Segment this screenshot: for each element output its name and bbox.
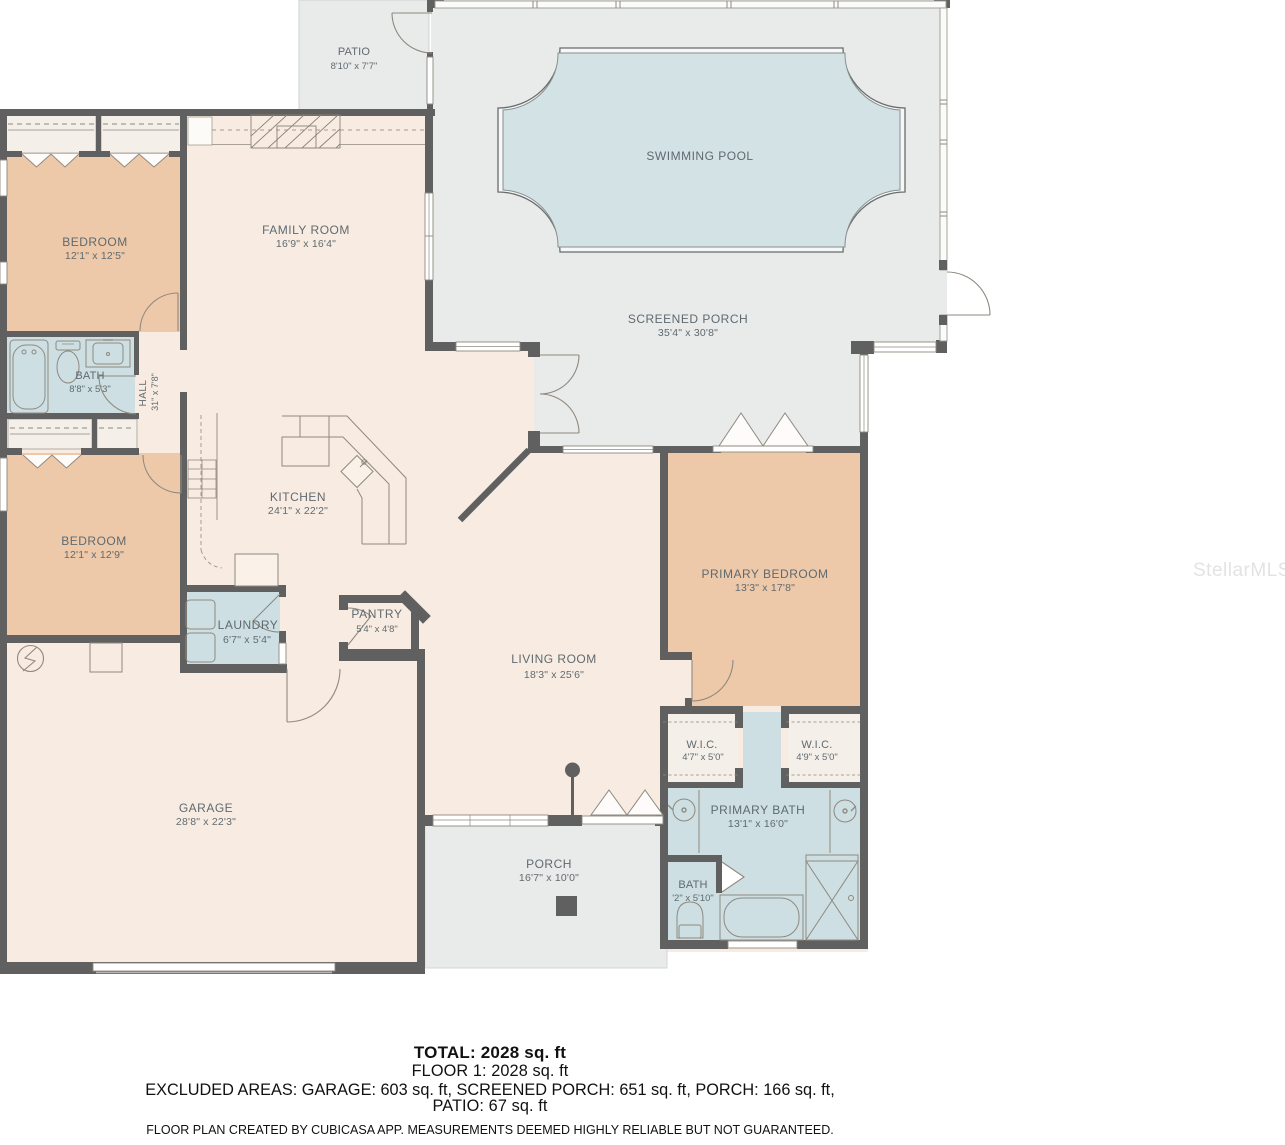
svg-text:24'1" x 22'2": 24'1" x 22'2" (268, 505, 328, 517)
svg-text:31" x 7'8": 31" x 7'8" (150, 373, 160, 411)
svg-text:LAUNDRY: LAUNDRY (218, 618, 279, 632)
svg-text:12'1" x 12'9": 12'1" x 12'9" (64, 549, 124, 561)
svg-text:6'7" x 5'4": 6'7" x 5'4" (223, 634, 271, 646)
svg-text:PORCH: PORCH (526, 857, 572, 871)
svg-text:8'10" x 7'7": 8'10" x 7'7" (331, 61, 378, 72)
svg-text:FAMILY ROOM: FAMILY ROOM (262, 223, 350, 237)
svg-text:'2" x 5'10": '2" x 5'10" (672, 893, 714, 904)
svg-text:5'4" x 4'8": 5'4" x 4'8" (356, 624, 398, 635)
svg-text:16'9" x 16'4": 16'9" x 16'4" (276, 238, 336, 250)
svg-text:13'3" x 17'8": 13'3" x 17'8" (735, 582, 795, 594)
svg-text:4'9" x 5'0": 4'9" x 5'0" (796, 752, 838, 763)
svg-text:LIVING ROOM: LIVING ROOM (511, 652, 597, 666)
svg-text:12'1" x 12'5": 12'1" x 12'5" (65, 250, 125, 262)
svg-text:4'7" x 5'0": 4'7" x 5'0" (682, 752, 724, 763)
svg-text:BEDROOM: BEDROOM (61, 534, 127, 548)
svg-text:BEDROOM: BEDROOM (62, 235, 128, 249)
svg-text:W.I.C.: W.I.C. (686, 739, 717, 751)
svg-text:W.I.C.: W.I.C. (801, 739, 832, 751)
svg-text:16'7" x 10'0": 16'7" x 10'0" (519, 872, 579, 884)
svg-text:8'8" x 5'3": 8'8" x 5'3" (69, 384, 111, 395)
svg-text:GARAGE: GARAGE (179, 801, 233, 815)
svg-text:KITCHEN: KITCHEN (270, 490, 326, 504)
svg-text:PANTRY: PANTRY (351, 607, 402, 621)
svg-text:28'8" x 22'3": 28'8" x 22'3" (176, 816, 236, 828)
svg-text:18'3" x 25'6": 18'3" x 25'6" (524, 669, 584, 681)
svg-text:PRIMARY BATH: PRIMARY BATH (711, 803, 806, 817)
svg-text:PATIO: PATIO (338, 46, 371, 58)
svg-text:HALL: HALL (138, 379, 149, 406)
svg-text:35'4" x 30'8": 35'4" x 30'8" (658, 327, 718, 339)
svg-text:13'1" x 16'0": 13'1" x 16'0" (728, 818, 788, 830)
svg-text:SCREENED PORCH: SCREENED PORCH (628, 312, 748, 326)
svg-text:PRIMARY BEDROOM: PRIMARY BEDROOM (701, 567, 828, 581)
svg-text:SWIMMING POOL: SWIMMING POOL (646, 149, 753, 163)
svg-text:BATH: BATH (75, 370, 104, 382)
svg-text:BATH: BATH (678, 879, 707, 891)
